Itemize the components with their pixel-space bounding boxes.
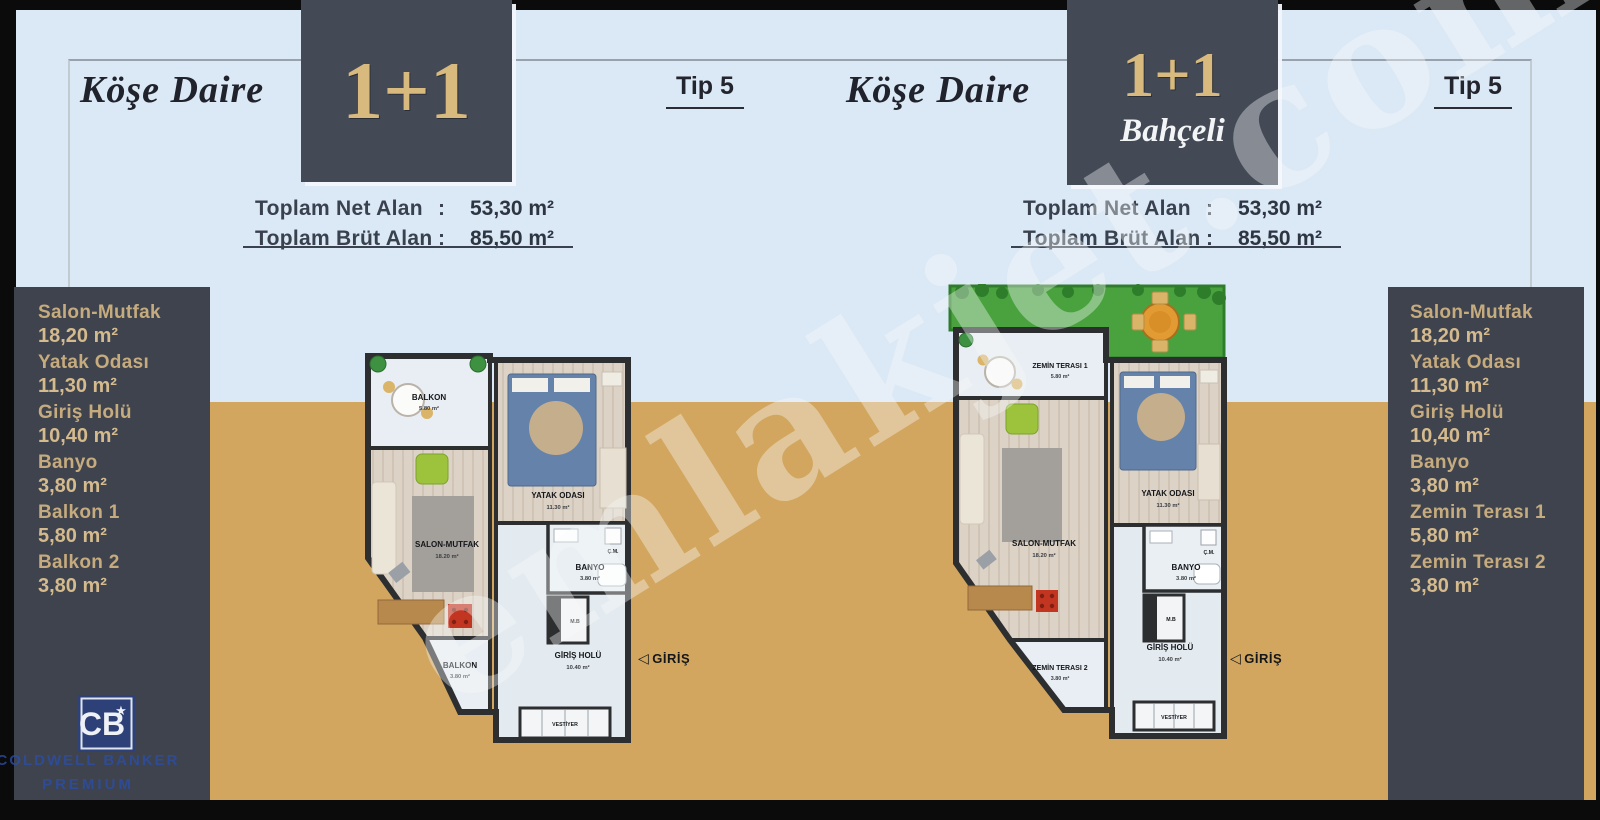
rug [1002,448,1062,542]
chair [1152,292,1168,304]
stove [448,604,472,628]
svg-text:SALON-MUTFAK: SALON-MUTFAK [415,540,479,549]
room-name: Salon-Mutfak [1410,302,1584,324]
room-area: 3,80 m² [1410,574,1584,598]
room-name: Banyo [1410,452,1584,474]
mb-wall [548,597,561,643]
coldwell-banker-logo-icon: CB ★ [78,695,135,752]
list-item: Balkon 2 3,80 m² [38,552,210,602]
chair [1152,340,1168,352]
room-name: Giriş Holü [1410,402,1584,424]
entrance-label: GİRİŞ [1244,651,1282,666]
plant-icon [370,356,386,372]
entrance-arrow-icon: ◁ [1230,650,1241,666]
room-name: Giriş Holü [38,402,210,424]
blanket [1137,393,1185,441]
svg-text:M.B: M.B [570,619,580,625]
garden-table-top [1149,311,1171,333]
room-area: 18,20 m² [1410,324,1584,348]
armchair [416,454,448,484]
room-area: 11,30 m² [38,374,210,398]
terrace-table [985,357,1015,387]
svg-text:ZEMİN TERASI 2: ZEMİN TERASI 2 [1032,664,1087,672]
svg-text:GİRİŞ HOLÜ: GİRİŞ HOLÜ [555,651,602,660]
svg-text:5.80 m²: 5.80 m² [1051,374,1070,380]
pillow [512,378,548,392]
net-area-value: 53,30 m² [470,197,554,221]
right-area-summary: Toplam Net Alan : 53,30 m² Toplam Brüt A… [1023,197,1363,257]
svg-text:M.B: M.B [1166,617,1176,623]
kitchen-counter [378,600,444,624]
brand-name: COLDWELL BANKER [0,752,186,769]
svg-text:3.80 m²: 3.80 m² [1176,575,1196,582]
plant-icon [959,333,973,347]
room-name: Balkon 1 [38,502,210,524]
list-item: Banyo 3,80 m² [38,452,210,502]
svg-text:18.20 m²: 18.20 m² [435,553,458,560]
washing-machine [1201,530,1216,545]
svg-text:Ç.M.: Ç.M. [608,549,620,555]
background-tan [16,402,1596,800]
svg-text:BANYO: BANYO [576,563,605,572]
nightstand [602,372,622,386]
room-name: Zemin Terası 2 [1410,552,1584,574]
room-area: 18,20 m² [38,324,210,348]
svg-text:BANYO: BANYO [1172,563,1201,572]
room-area: 10,40 m² [38,424,210,448]
sofa [960,434,984,524]
left-tip-label: Tip 5 [666,72,744,109]
chair [383,381,395,393]
svg-text:SALON-MUTFAK: SALON-MUTFAK [1012,539,1076,548]
svg-text:BALKON: BALKON [412,393,446,402]
list-item: Salon-Mutfak 18,20 m² [1410,302,1584,352]
net-area-value: 53,30 m² [1238,197,1322,221]
room-area: 10,40 m² [1410,424,1584,448]
left-panel-title: Köşe Daire [80,68,264,112]
blanket [529,401,583,455]
svg-text:YATAK ODASI: YATAK ODASI [1141,489,1194,498]
left-area-summary: Toplam Net Alan : 53,30 m² Toplam Brüt A… [255,197,595,257]
entrance-label: GİRİŞ [652,651,690,666]
list-item: Giriş Holü 10,40 m² [1410,402,1584,452]
plant-icon [470,356,486,372]
chair [978,355,989,366]
right-tip-label: Tip 5 [1434,72,1512,109]
right-badge-sublabel: Bahçeli [1120,113,1225,150]
net-area-colon: : [1206,197,1213,221]
nightstand [1200,370,1218,383]
svg-text:VESTİYER: VESTİYER [1161,714,1187,721]
right-net-area-row: Toplam Net Alan : 53,30 m² [1023,197,1363,221]
room-area: 5,80 m² [38,524,210,548]
svg-text:3.80 m²: 3.80 m² [450,673,470,680]
wardrobe [1198,444,1220,500]
room-area: 3,80 m² [1410,474,1584,498]
bath-sink [554,529,578,542]
svg-text:18.20 m²: 18.20 m² [1032,552,1055,559]
net-area-label: Toplam Net Alan [1023,197,1191,221]
left-summary-rule [243,246,573,248]
chair [1012,379,1023,390]
list-item: Balkon 1 5,80 m² [38,502,210,552]
list-item: Yatak Odası 11,30 m² [38,352,210,402]
svg-text:3.80 m²: 3.80 m² [580,575,600,582]
list-item: Yatak Odası 11,30 m² [1410,352,1584,402]
armchair [1006,404,1038,434]
pillow [1160,376,1190,388]
svg-text:11.30 m²: 11.30 m² [1157,502,1180,509]
right-summary-rule [1011,246,1341,248]
left-room-list-panel: Salon-Mutfak 18,20 m² Yatak Odası 11,30 … [14,287,210,800]
right-type-badge: 1+1 Bahçeli [1067,0,1278,185]
kitchen-counter [968,586,1032,610]
room-area: 3,80 m² [38,474,210,498]
net-area-label: Toplam Net Alan [255,197,423,221]
svg-text:10.40 m²: 10.40 m² [1158,656,1181,663]
mb-wall [1144,595,1157,641]
svg-text:3.80 m²: 3.80 m² [1051,676,1070,682]
list-item: Zemin Terası 1 5,80 m² [1410,502,1584,552]
pillow [554,378,590,392]
chair [1184,314,1196,330]
svg-text:GİRİŞ HOLÜ: GİRİŞ HOLÜ [1147,643,1194,652]
room-balcony-1 [368,356,490,448]
room-name: Salon-Mutfak [38,302,210,324]
right-badge-label: 1+1 [1122,43,1222,107]
room-area: 11,30 m² [1410,374,1584,398]
room-area: 5,80 m² [1410,524,1584,548]
entrance-arrow-left: ◁GİRİŞ [638,650,690,667]
net-area-colon: : [438,197,445,221]
svg-text:11.30 m²: 11.30 m² [547,504,570,511]
list-item: Giriş Holü 10,40 m² [38,402,210,452]
sofa [372,482,396,574]
svg-text:ZEMİN TERASI 1: ZEMİN TERASI 1 [1032,362,1087,370]
stove [1036,590,1058,612]
right-panel-title: Köşe Daire [846,68,1030,112]
room-name: Balkon 2 [38,552,210,574]
star-icon: ★ [115,703,127,718]
list-item: Salon-Mutfak 18,20 m² [38,302,210,352]
room-name: Yatak Odası [38,352,210,374]
list-item: Zemin Terası 2 3,80 m² [1410,552,1584,602]
pillow [1124,376,1154,388]
list-item: Banyo 3,80 m² [1410,452,1584,502]
svg-text:Ç.M.: Ç.M. [1204,550,1216,556]
left-badge-label: 1+1 [342,50,471,132]
room-name: Zemin Terası 1 [1410,502,1584,524]
svg-text:5.80 m²: 5.80 m² [419,405,439,412]
entrance-arrow-right: ◁GİRİŞ [1230,650,1282,667]
room-name: Yatak Odası [1410,352,1584,374]
entrance-arrow-icon: ◁ [638,650,649,666]
svg-text:YATAK ODASI: YATAK ODASI [531,491,584,500]
left-type-badge: 1+1 [301,0,512,182]
floor-plan-right: ZEMİN TERASI 1 5.80 m² YATAK ODASI 11.30… [948,284,1228,742]
right-room-list-panel: Salon-Mutfak 18,20 m² Yatak Odası 11,30 … [1388,287,1584,800]
bath-sink [1150,531,1172,543]
room-name: Banyo [38,452,210,474]
brand-tier: PREMIUM [0,776,186,793]
svg-text:VESTİYER: VESTİYER [552,721,578,728]
floor-plan-left: BALKON 5.80 m² YATAK ODASI 11.30 m² SALO… [362,348,634,744]
wardrobe [600,448,626,508]
svg-text:BALKON: BALKON [443,661,477,670]
left-net-area-row: Toplam Net Alan : 53,30 m² [255,197,595,221]
svg-text:10.40 m²: 10.40 m² [566,664,589,671]
chair [1132,314,1144,330]
room-area: 3,80 m² [38,574,210,598]
washing-machine [605,528,621,544]
